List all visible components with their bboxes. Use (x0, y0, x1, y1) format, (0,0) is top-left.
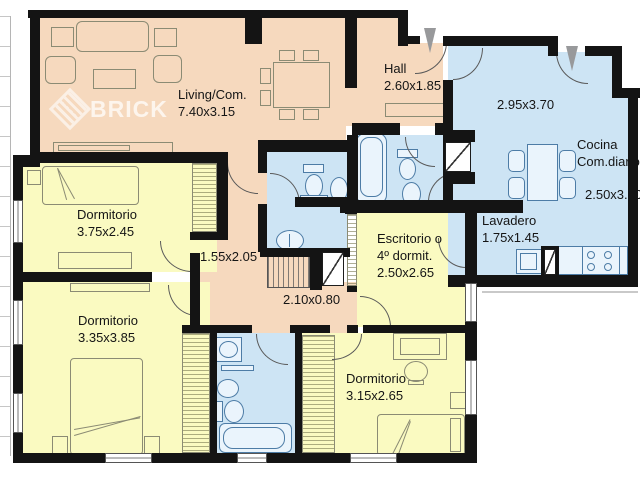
coffee-table (93, 69, 136, 89)
floor-plan: BRICK Living/Com.7.40x3.15Hall2.60x1.852… (0, 0, 640, 480)
label-bedroom3-line1: 3.15x2.65 (346, 387, 403, 404)
kitchen-chair (559, 177, 576, 199)
wall-study-left-stub (347, 325, 358, 333)
pillow (450, 418, 461, 452)
dresser (58, 252, 132, 269)
toilet-bowl (399, 158, 416, 180)
window-bedroom2-b (13, 393, 23, 433)
service-entrance-arrow (566, 46, 578, 71)
bed (70, 358, 143, 455)
armchair (153, 55, 182, 83)
stove (582, 246, 620, 275)
label-corridor1-line0: 1.55x2.05 (200, 248, 257, 265)
label-living-line1: 7.40x3.15 (178, 103, 235, 120)
window-bedroom3-right (465, 360, 477, 415)
stove-burner (604, 263, 612, 271)
bedroom3-wardrobe (302, 335, 335, 453)
dining-table (273, 62, 330, 108)
bedroom2-closet (182, 333, 210, 453)
hall-living-opening (346, 88, 357, 126)
label-bedroom3-line0: Dormitorio (346, 370, 406, 387)
wall-bedroom2-bathroom (210, 333, 217, 455)
bath-shelf (221, 365, 254, 371)
bedroom1-closet (192, 163, 217, 232)
wall-hall-bottom-a (352, 123, 400, 135)
outer-wall-study-right-a (465, 213, 477, 283)
window-bathroom (237, 453, 267, 463)
window-bedroom2-bottom (105, 453, 152, 463)
stove-burner (587, 251, 595, 259)
outer-wall-kitchen-top (443, 36, 558, 46)
dining-chair (303, 109, 319, 120)
wall-bedroom1-closet-bottom (190, 232, 217, 240)
bed (42, 166, 139, 205)
dining-chair (303, 50, 319, 61)
wall-pier-living (245, 10, 262, 44)
desk-chair-back (408, 380, 424, 385)
label-lavadero-line0: Lavadero (482, 212, 536, 229)
brick-watermark: BRICK (55, 94, 168, 124)
wall-corridor-toilette-b (258, 204, 267, 252)
window-bedroom2-a (13, 300, 23, 345)
dining-chair (279, 50, 295, 61)
desk-chair (404, 361, 428, 382)
dining-chair (260, 90, 271, 106)
wall-bedroom1-corridor (217, 152, 228, 240)
label-kitchen-dim-line0: 2.95x3.70 (497, 96, 554, 113)
nightstand (144, 436, 160, 454)
label-bedroom1-line1: 3.75x2.45 (77, 223, 134, 240)
label-bedroom2-line0: Dormitorio (78, 312, 138, 329)
label-study-line0: Escritorio o (377, 230, 442, 247)
hall-closet-panel (322, 252, 344, 286)
outer-wall-bedroom3-right-a (465, 333, 477, 360)
sofa (76, 21, 149, 52)
washbasin-tap (289, 234, 290, 247)
kitchen-chair (559, 150, 576, 172)
outer-wall-kitchen-step (548, 36, 558, 56)
label-living-line0: Living/Com. (178, 86, 247, 103)
brick-logo-text: BRICK (90, 96, 168, 123)
washbasin (219, 341, 238, 358)
wall-hall-bottom-b (435, 123, 443, 135)
wall-bedroom2-closet-top (182, 325, 217, 333)
outer-wall-study-right-b (465, 322, 477, 333)
label-cocina-line0: Cocina (577, 136, 617, 153)
shelf (70, 283, 150, 292)
stove-burner (604, 251, 612, 259)
wall-toilette-top (258, 140, 358, 152)
closet-door-panel (445, 142, 471, 172)
label-bedroom1-line0: Dormitorio (77, 206, 137, 223)
toilet-bowl (224, 400, 244, 423)
wall-closet-nook-bottom (443, 172, 475, 184)
nightstand (52, 436, 68, 454)
kitchen-table (527, 144, 558, 201)
label-corridor2-line0: 2.10x0.80 (283, 291, 340, 308)
kitchen-chair (508, 150, 525, 172)
window-bedroom3-bottom (350, 453, 397, 463)
stairs-treads (267, 252, 310, 288)
wall-study-left-mid (347, 286, 357, 292)
dining-chair (260, 68, 271, 84)
brick-logo-icon (49, 88, 91, 130)
side-table (154, 28, 177, 47)
wall-bedroom1-bedroom2-stub (190, 272, 200, 282)
wall-corridor-toilette-a (258, 152, 267, 173)
outer-wall-step-h (398, 36, 420, 44)
window-bedroom1 (13, 200, 23, 243)
stove-burner (587, 263, 595, 271)
laundry-door-panel (544, 249, 556, 275)
label-lavadero-line1: 1.75x1.45 (482, 229, 539, 246)
label-cocina-line1: Com.diario (577, 153, 640, 170)
window-study (465, 283, 477, 322)
tv (58, 145, 130, 151)
label-cocina-dim-line0: 2.50x3.30 (585, 186, 640, 203)
wall-stairs-right (310, 250, 322, 290)
label-hall-line1: 2.60x1.85 (384, 77, 441, 94)
outer-wall-bedroom3-right-b (465, 415, 477, 455)
left-ledge-hatch (0, 16, 11, 456)
label-study-line1: 4º dormit. (377, 247, 432, 264)
label-hall-line0: Hall (384, 60, 406, 77)
wall-corridor-bottom-c (363, 325, 465, 333)
label-bedroom2-line1: 3.35x3.85 (78, 329, 135, 346)
side-table (51, 27, 74, 47)
laundry-sink-basin (520, 253, 537, 270)
label-study-line2: 2.50x2.65 (377, 264, 434, 281)
armchair (45, 56, 76, 84)
bathtub-inner (223, 427, 285, 449)
wall-living-hall (345, 10, 357, 88)
wall-bedroom1-bedroom2 (13, 272, 152, 282)
outer-wall-left-living (30, 10, 40, 160)
wall-closet-nook-top (443, 130, 475, 142)
nightstand (27, 170, 41, 185)
desk-monitor (400, 338, 440, 355)
bidet (217, 379, 239, 398)
wall-living-bottom (33, 152, 225, 163)
dining-chair (279, 109, 295, 120)
entrance-arrow (424, 28, 436, 53)
terrace-edge-line (482, 291, 638, 293)
bathtub-inner (360, 137, 383, 197)
wall-bathroom-bedroom3 (295, 333, 302, 455)
kitchen-chair (508, 177, 525, 199)
toilet-tank (303, 164, 324, 173)
wall-corridor-bottom-b (290, 325, 330, 333)
